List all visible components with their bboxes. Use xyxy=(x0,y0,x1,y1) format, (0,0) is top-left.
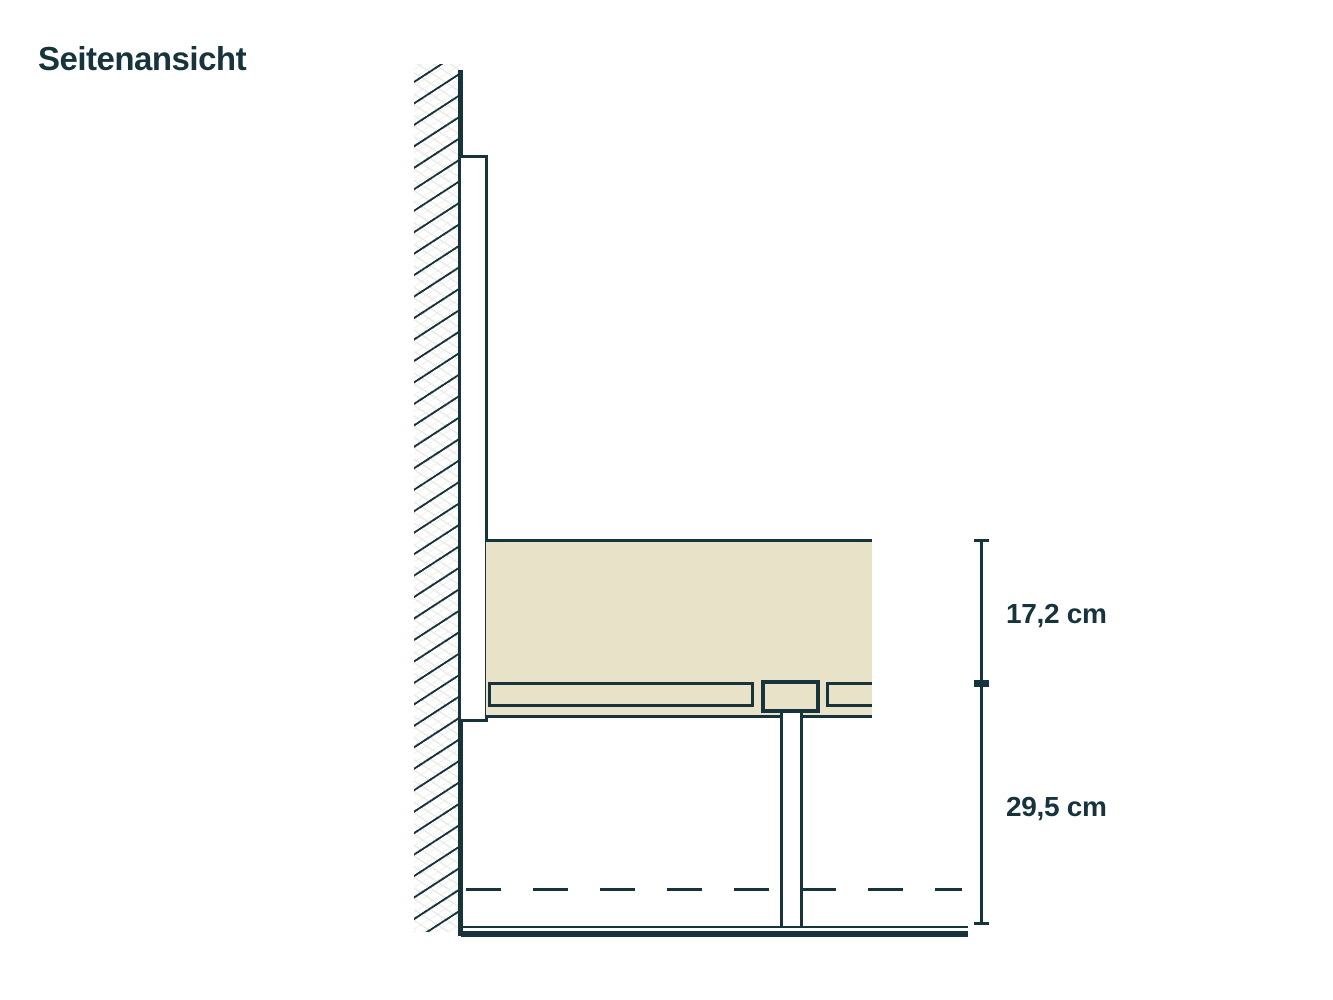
slat-right xyxy=(826,682,872,707)
dimension-tick-top xyxy=(974,539,989,543)
center-leg xyxy=(780,712,803,926)
slat-left xyxy=(488,682,754,707)
floor-line-thick xyxy=(461,931,968,937)
clearance-dashed-line xyxy=(466,888,962,891)
dimension-label-upper: 17,2 cm xyxy=(1006,598,1107,630)
dimension-label-lower: 29,5 cm xyxy=(1006,791,1107,823)
dimension-tick-middle xyxy=(974,680,989,687)
dimension-line xyxy=(980,540,983,925)
drawing-title: Seitenansicht xyxy=(38,40,246,78)
leg-mount-plate xyxy=(761,680,820,713)
back-panel xyxy=(458,155,488,722)
dimension-tick-bottom xyxy=(974,922,989,926)
side-view-technical-drawing: Seitenansicht 17,2 cm 29,5 cm xyxy=(0,0,1333,1000)
wall-hatching xyxy=(414,64,462,932)
floor-line-thin xyxy=(461,926,968,928)
